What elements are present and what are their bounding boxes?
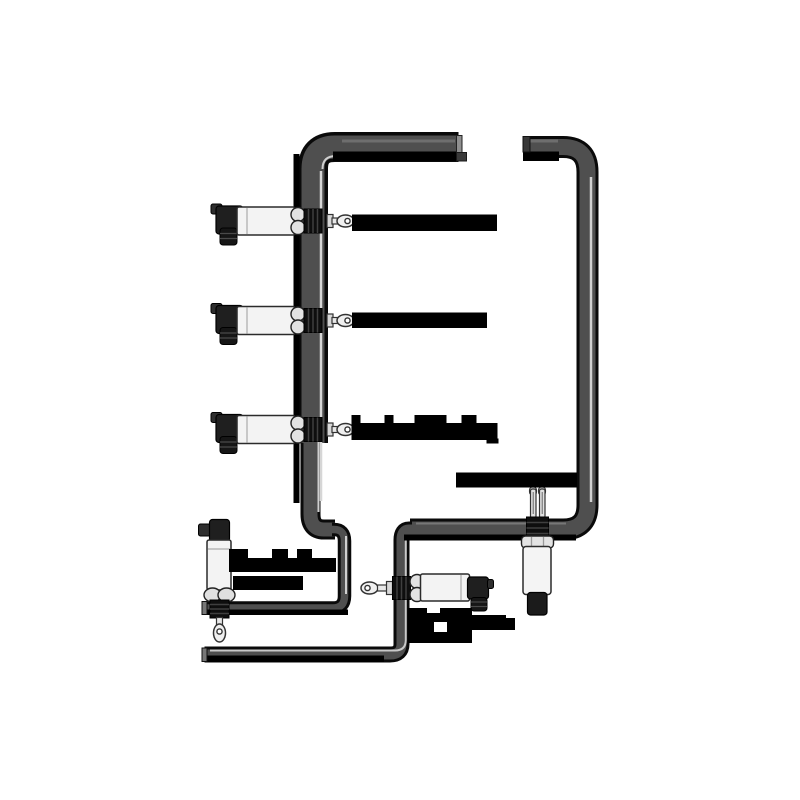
union-ring [291, 429, 305, 443]
key-hole [345, 427, 350, 432]
redacted-label-middle-valve-bar [506, 618, 515, 630]
valve-body [237, 207, 295, 235]
valve-body [523, 547, 551, 595]
background [0, 0, 800, 800]
redacted-label-right-valve-bar [456, 473, 577, 488]
key-collar [387, 582, 393, 595]
actuator-block [468, 577, 489, 599]
redacted-label-valve-3-bar [352, 423, 498, 440]
redacted-label-right-valve [456, 473, 577, 488]
valve-body [207, 540, 231, 590]
redacted-label-bottom-left-line1-bar [297, 549, 312, 559]
redacted-label-valve-3-bar [487, 439, 499, 444]
redacted-label-valve-1-bar [352, 215, 497, 232]
cap-top-left-segment-tab [457, 153, 467, 162]
adjuster-stack [220, 437, 237, 454]
redacted-label-valve-3-bar [462, 415, 477, 424]
redacted-label-valve-3-bar [415, 415, 447, 424]
key-hole [217, 629, 222, 634]
redacted-label-bottom-left-line2 [233, 576, 303, 590]
cap-bottom-pipe-open-end [202, 648, 207, 662]
union-ring [291, 208, 305, 222]
valve-body [237, 307, 295, 335]
union-ring [291, 416, 305, 430]
cap-top-left-segment-end [457, 136, 463, 154]
redacted-label-valve-3-bar [385, 415, 394, 424]
redacted-label-valve-2-bar [352, 313, 487, 329]
cap-branch-stub-open-end [202, 602, 207, 615]
bottom-cap [528, 593, 548, 616]
redacted-label-middle-valve-bar [467, 615, 506, 630]
union-ring [291, 221, 305, 235]
union-ring [291, 307, 305, 321]
actuator-nub [199, 524, 211, 536]
cap-top-right-segment-start [523, 137, 530, 153]
redacted-label-valve-2 [352, 313, 487, 329]
piping-diagram-canvas [0, 0, 800, 800]
key-hole [345, 218, 350, 223]
redacted-label-bottom-left-line1-bar [272, 549, 288, 559]
redacted-label-valve-1 [352, 215, 497, 232]
adjuster-stack [471, 598, 487, 612]
band-under-top-left-pipe [333, 152, 459, 162]
band-under-bottom-pipe [206, 656, 384, 663]
key-hole [365, 585, 370, 590]
key-hole [345, 318, 350, 323]
band-under-top-right-pipe [523, 152, 559, 162]
valve-body [237, 416, 295, 444]
redacted-label-valve-3-bar [352, 415, 361, 424]
actuator-cap [210, 520, 230, 542]
valve-body [421, 574, 470, 601]
adjuster-stack [220, 328, 237, 345]
piping-diagram [0, 0, 800, 800]
redacted-label-middle-valve-notch [434, 622, 447, 632]
union-ring [291, 320, 305, 334]
adjuster-stack [220, 228, 237, 245]
redacted-label-bottom-left-line1-bar [229, 558, 336, 572]
actuator-nub [488, 580, 494, 589]
redacted-label-bottom-left-line1-bar [229, 549, 248, 559]
redacted-label-middle-valve-bar [440, 608, 472, 614]
redacted-label-bottom-left-line2-bar [233, 576, 303, 590]
redacted-label-middle-valve-bar [408, 608, 427, 614]
